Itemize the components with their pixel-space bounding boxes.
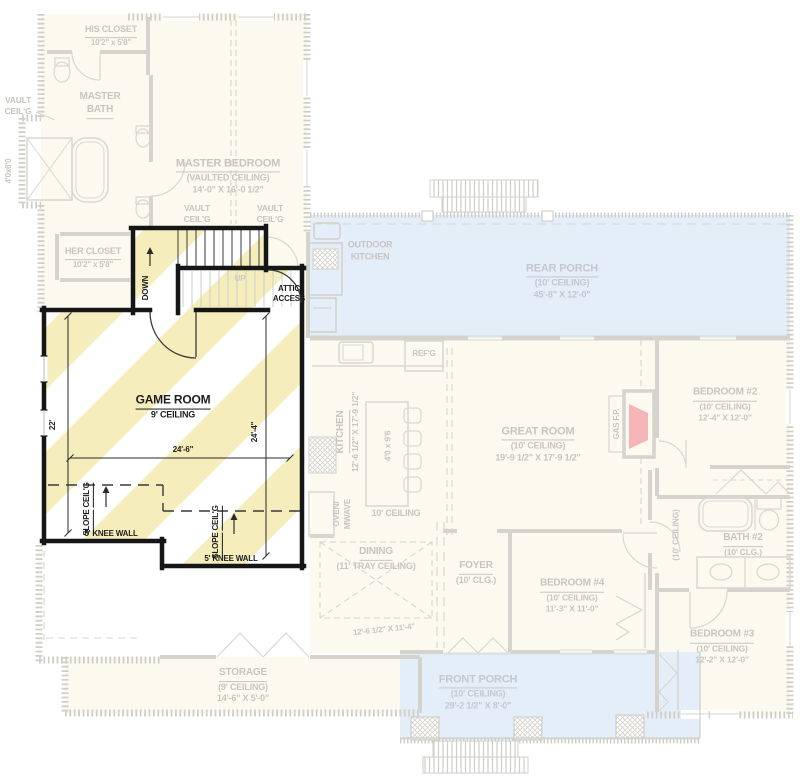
- dim-left-label: 22': [48, 420, 58, 430]
- slope-ceiling-label-left: SLOPE CEIL'G: [82, 482, 94, 535]
- floor-plan-page: HIS CLOSET 10'2" x 5'8" MASTER BATH VAUL…: [0, 0, 812, 780]
- second-floor-overlay-drawing: [0, 0, 812, 780]
- attic-access-label: ATTIC ACCESS: [273, 284, 305, 304]
- stairs-down-label: DOWN: [141, 276, 151, 301]
- dim-width-label: 24'-6": [173, 445, 194, 455]
- knee-wall-label-right: 5' KNEE WALL: [204, 554, 257, 564]
- stairs-up-label: UP: [235, 274, 246, 284]
- slope-ceiling-label-right: SLOPE CEIL'G: [211, 505, 223, 558]
- dim-right-label: 24'-4": [250, 422, 260, 443]
- knee-wall-label-left: 5' KNEE WALL: [84, 529, 137, 539]
- game-room-label: GAME ROOM 9' CEILING: [136, 393, 211, 422]
